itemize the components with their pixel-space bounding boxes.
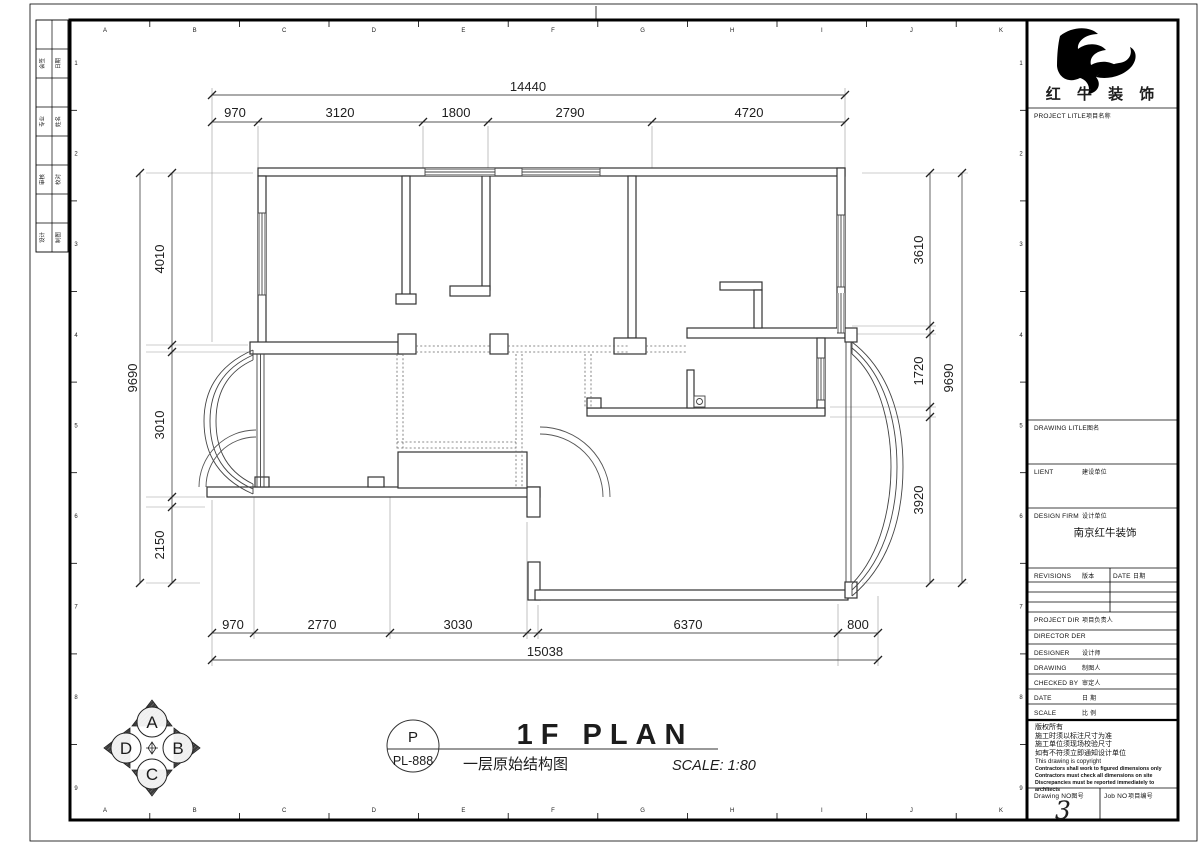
- binding-strip-label: 审核: [38, 174, 46, 186]
- dim-top-segment: 2790: [556, 105, 585, 120]
- grid-letter-bottom: D: [372, 808, 377, 814]
- dim-left-total: 9690: [125, 364, 140, 393]
- grid-letter-top: A: [103, 28, 107, 34]
- grid-number-left: 7: [74, 605, 78, 611]
- field-scale: SCALE比 例: [1034, 708, 1096, 717]
- compass-a: A: [146, 713, 158, 732]
- grid-number-right: 7: [1019, 605, 1023, 611]
- stamp-code: PL-888: [393, 754, 433, 768]
- dim-right-segment: 1720: [911, 357, 926, 386]
- drawing-no-value: 3: [1055, 796, 1071, 825]
- grid-number-left: 2: [74, 152, 78, 158]
- grid-number-right: 6: [1019, 514, 1023, 520]
- compass-b: B: [172, 739, 183, 758]
- grid-letter-top: G: [640, 28, 645, 34]
- grid-letter-bottom: C: [282, 808, 287, 814]
- dim-right-segment: 3610: [911, 236, 926, 265]
- dim-left-segment: 4010: [152, 245, 167, 274]
- dim-bottom-segment: 6370: [674, 617, 703, 632]
- grid-letter-bottom: I: [821, 808, 823, 814]
- dim-left-segment: 3010: [152, 411, 167, 440]
- grid-number-right: 8: [1019, 695, 1023, 701]
- grid-letter-top: D: [372, 28, 377, 34]
- copyright-bold-line: Contractors shall work to figured dimens…: [1035, 766, 1175, 773]
- dimension-segment-labels: 9703120180027904720970277030306370800401…: [152, 105, 926, 632]
- field-client: LIENT建设单位: [1034, 467, 1107, 476]
- plan-caption-zh: 一层原始结构图: [463, 756, 568, 773]
- grid-number-right: 1: [1019, 61, 1023, 67]
- bay-windows: [204, 342, 903, 596]
- grid-number-left: 6: [74, 514, 78, 520]
- plan-title: 1F PLAN: [517, 719, 694, 751]
- grid-number-right: 5: [1019, 423, 1023, 429]
- grid-number-right: 4: [1019, 333, 1023, 339]
- grid-number-left: 4: [74, 333, 78, 339]
- binding-strip-label: 设计: [38, 232, 46, 244]
- field-revisions-date: DATE日期: [1113, 571, 1145, 580]
- grid-letter-bottom: J: [910, 808, 913, 814]
- brand-name: 红 牛 装 饰: [1046, 85, 1161, 103]
- field-project-dir: PROJECT DIR项目负责人: [1034, 615, 1113, 624]
- grid-letter-top: E: [461, 28, 465, 34]
- dim-top-segment: 1800: [442, 105, 471, 120]
- design-firm-value: 南京红牛装饰: [1032, 525, 1178, 540]
- copyright-line: 施工时须以标注尺寸为准: [1035, 733, 1175, 742]
- field-project-title: PROJECT LITLE项目名称: [1034, 111, 1111, 120]
- plan-scale: SCALE: 1:80: [672, 758, 756, 774]
- copyright-line: 如有不符须立即通知设计单位: [1035, 750, 1175, 759]
- grid-letter-bottom: A: [103, 808, 107, 814]
- dim-top-segment: 970: [224, 105, 246, 120]
- copyright-line: 版权所有: [1035, 724, 1175, 733]
- field-checked-by: CHECKED BY审定人: [1034, 678, 1101, 687]
- field-job-no: Job NO项目编号: [1104, 791, 1153, 800]
- dim-bottom-segment: 3030: [444, 617, 473, 632]
- grid-letter-top: C: [282, 28, 287, 34]
- copyright-notice: 版权所有施工时须以标注尺寸为准施工单位须现场校验尺寸如有不符须立即通知设计单位T…: [1035, 724, 1175, 794]
- grid-letter-bottom: G: [640, 808, 645, 814]
- field-drawing-title: DRAWING LITLE图名: [1034, 423, 1099, 432]
- grid-letter-bottom: F: [551, 808, 555, 814]
- field-director: DIRECTOR DER: [1034, 633, 1086, 640]
- dim-bottom-total: 15038: [527, 644, 563, 659]
- grid-letter-bottom: E: [461, 808, 465, 814]
- binding-strip-label: 姓名: [54, 116, 62, 127]
- grid-letter-bottom: B: [193, 808, 197, 814]
- brand-logo: [1057, 28, 1136, 94]
- grid-letter-top: I: [821, 28, 823, 34]
- binding-strip-label: 校对: [54, 174, 62, 186]
- field-revisions: REVISIONS版本: [1034, 571, 1094, 580]
- dim-top-total: 14440: [510, 79, 546, 94]
- dim-bottom-segment: 970: [222, 617, 244, 632]
- grid-number-left: 1: [74, 61, 78, 67]
- grid-letters-bottom: ABCDEFGHIJK: [103, 808, 1003, 820]
- floor-drain-symbol: [694, 396, 705, 407]
- drawing-title-group: P PL-888 1F PLAN 一层原始结构图 SCALE: 1:80: [387, 719, 756, 774]
- compass-c: C: [146, 765, 158, 784]
- grid-number-left: 8: [74, 695, 78, 701]
- dim-top-segment: 4720: [735, 105, 764, 120]
- binding-strip-label: 会签: [38, 58, 46, 70]
- stamp-letter: P: [408, 729, 418, 746]
- grid-letter-top: H: [730, 28, 734, 34]
- compass: A B C D: [104, 700, 200, 796]
- dim-right-segment: 3920: [911, 486, 926, 515]
- binding-strip-label: 制图: [54, 232, 62, 244]
- compass-d: D: [120, 739, 132, 758]
- grid-letter-bottom: H: [730, 808, 734, 814]
- grid-number-left: 9: [74, 786, 78, 792]
- dim-left-segment: 2150: [152, 531, 167, 560]
- grid-letter-bottom: K: [999, 808, 1003, 814]
- dim-bottom-segment: 2770: [308, 617, 337, 632]
- sheet-frame: 会签日期专业姓名审核校对设计制图 ABCDEFGHIJK ABCDEFGHIJK…: [30, 4, 1197, 841]
- grid-number-left: 3: [74, 242, 78, 248]
- windows: [257, 168, 851, 582]
- grid-letter-top: J: [910, 28, 913, 34]
- grid-number-right: 2: [1019, 152, 1023, 158]
- grid-letter-top: K: [999, 28, 1003, 34]
- grid-number-left: 5: [74, 423, 78, 429]
- grid-letters-top: ABCDEFGHIJK: [103, 20, 1003, 34]
- binding-strip: 会签日期专业姓名审核校对设计制图: [36, 20, 68, 252]
- field-designer: DESIGNER设计师: [1034, 648, 1101, 657]
- field-date: DATE日 期: [1034, 693, 1096, 702]
- floor-plan: 14440 15038 9690 9690 970312018002790472…: [125, 79, 968, 666]
- binding-strip-label: 专业: [38, 116, 46, 128]
- floor-plan-canvas: 会签日期专业姓名审核校对设计制图 ABCDEFGHIJK ABCDEFGHIJK…: [0, 0, 1200, 845]
- grid-letter-top: F: [551, 28, 555, 34]
- dim-bottom-segment: 800: [847, 617, 869, 632]
- dim-right-total: 9690: [941, 364, 956, 393]
- drawing-sheet: 会签日期专业姓名审核校对设计制图 ABCDEFGHIJK ABCDEFGHIJK…: [0, 0, 1200, 845]
- copyright-line: This drawing is copyright: [1035, 758, 1175, 766]
- walls: [207, 168, 857, 600]
- copyright-line: 施工单位须现场校验尺寸: [1035, 741, 1175, 750]
- grid-letter-top: B: [193, 28, 197, 34]
- grid-number-right: 3: [1019, 242, 1023, 248]
- grid-number-right: 9: [1019, 786, 1023, 792]
- field-drawing-by: DRAWING制图人: [1034, 663, 1101, 672]
- copyright-bold-line: Contractors must check all dimensions on…: [1035, 773, 1175, 780]
- dim-top-segment: 3120: [326, 105, 355, 120]
- binding-strip-label: 日期: [55, 58, 62, 70]
- field-design-firm: DESIGN FIRM设计单位: [1034, 511, 1107, 520]
